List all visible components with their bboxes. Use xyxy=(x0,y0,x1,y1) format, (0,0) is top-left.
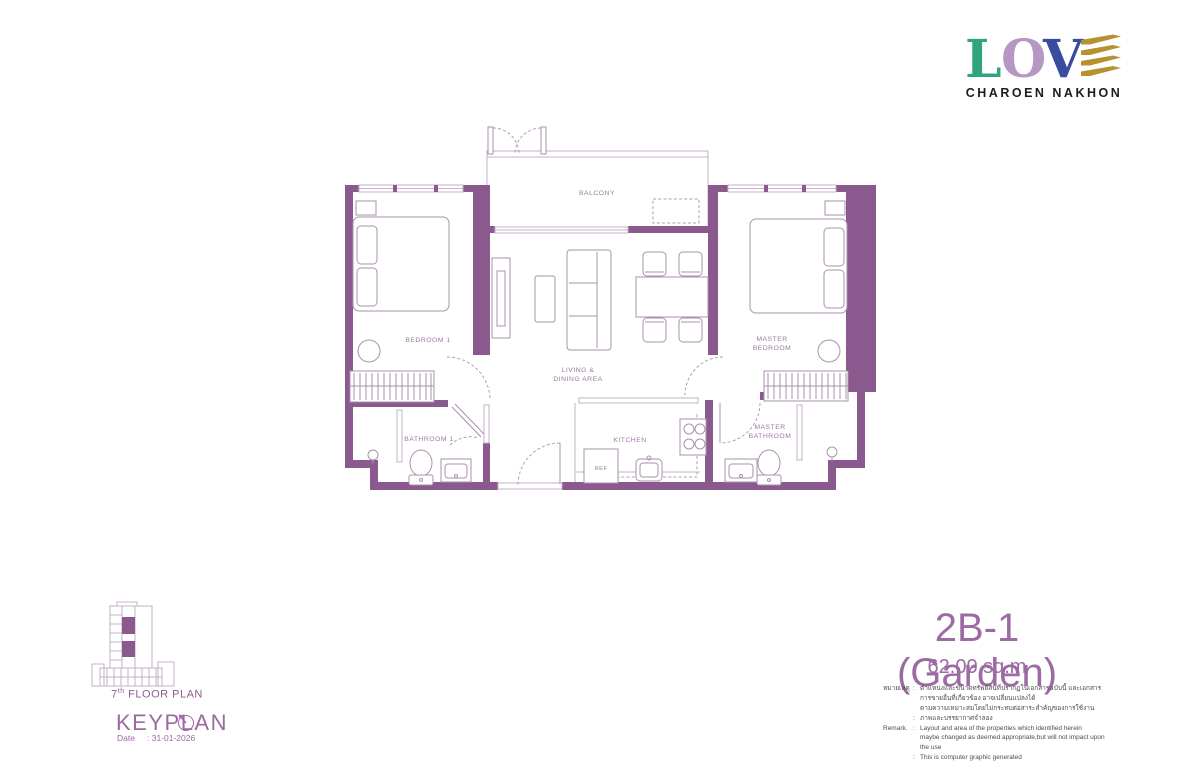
master-bathroom-label-line2: BATHROOM xyxy=(749,433,792,440)
bathroom1-label: BATHROOM 1 xyxy=(404,436,453,443)
floor-ordinal: th xyxy=(118,688,125,695)
toilet xyxy=(758,450,780,476)
master-bedroom-label-line2: BEDROOM xyxy=(753,345,792,352)
living-label-line2: DINING AREA xyxy=(553,376,602,383)
date-value: : 31-01-2026 xyxy=(147,733,195,743)
logo-letter-e-stripes-icon xyxy=(1081,35,1121,77)
entry-door-swing xyxy=(518,443,560,485)
unit-area: 62.00 sq.m xyxy=(857,656,1097,679)
keyplan-drawing xyxy=(85,598,185,698)
bedroom1-label: BEDROOM 1 xyxy=(405,337,450,344)
kitchen-fixtures: REF KITCHEN xyxy=(575,398,706,483)
unit-highlight xyxy=(122,617,135,634)
floor-plan-caption: 7th FLOOR PLAN xyxy=(92,688,222,701)
shower-head xyxy=(827,447,837,457)
unit-name: 2B-1 (Garden) xyxy=(857,606,1097,696)
living-dining-furniture: LIVING & DINING AREA xyxy=(492,250,708,383)
remark-row: ตามความเหมาะสมโดยไม่กระทบต่อสาระสำคัญของ… xyxy=(883,704,1108,714)
bedroom1-furniture: BEDROOM 1 xyxy=(350,201,451,402)
keyplan-building xyxy=(92,602,174,686)
page: { "logo": { "letters": [ {"char": "L", "… xyxy=(0,0,1200,776)
sofa xyxy=(567,250,611,350)
dining-table xyxy=(636,277,708,317)
living-label-line1: LIVING & xyxy=(562,367,595,374)
logo-letter-v: V xyxy=(1042,30,1085,82)
unit-highlight xyxy=(122,641,135,657)
north-arrow-icon xyxy=(176,712,196,732)
logo-letter-o: O xyxy=(1001,30,1046,82)
brand-name: CHAROEN NAKHON xyxy=(963,86,1125,100)
shower-head xyxy=(368,450,378,460)
refrigerator-label: REF xyxy=(594,466,607,472)
toilet xyxy=(410,450,432,476)
balcony-label: BALCONY xyxy=(579,190,615,197)
remark-block: หมายเหตุ : ตำแหน่งและขนาดทรัพย์สินที่ปรา… xyxy=(883,684,1108,763)
remark-row: Remark. : Layout and area of the propert… xyxy=(883,724,1108,734)
coffee-table xyxy=(535,276,555,322)
date-label: Date xyxy=(117,733,147,743)
master-bedroom-furniture: MASTER BEDROOM xyxy=(750,201,848,401)
kitchen-label: KITCHEN xyxy=(613,437,646,444)
floor-number: 7 xyxy=(111,689,118,701)
remark-row: : ภาพและบรรยากาศจำลอง xyxy=(883,714,1108,724)
remark-row: maybe changed as deemed appropriate,but … xyxy=(883,733,1108,753)
master-bathroom-fixtures: MASTER BATHROOM xyxy=(725,405,837,485)
ac-unit xyxy=(653,199,699,223)
remark-row: : This is computer graphic generated xyxy=(883,753,1108,763)
master-bedroom-label-line1: MASTER xyxy=(756,336,787,343)
balcony: BALCONY xyxy=(487,127,708,227)
bathroom1-fixtures: BATHROOM 1 xyxy=(368,410,471,485)
master-door-swing xyxy=(685,357,723,395)
master-bathroom-label-line1: MASTER xyxy=(754,424,785,431)
floor-plan: BALCONY xyxy=(320,115,900,510)
floor-caption-text: FLOOR PLAN xyxy=(128,689,203,701)
logo-letter-l: L xyxy=(965,30,1002,82)
keyplan-date: Date : 31-01-2026 xyxy=(117,733,195,743)
lov-logo: L O V xyxy=(963,30,1125,82)
bedroom1-door-swing xyxy=(447,357,490,400)
remark-row: หมายเหตุ : ตำแหน่งและขนาดทรัพย์สินที่ปรา… xyxy=(883,684,1108,704)
